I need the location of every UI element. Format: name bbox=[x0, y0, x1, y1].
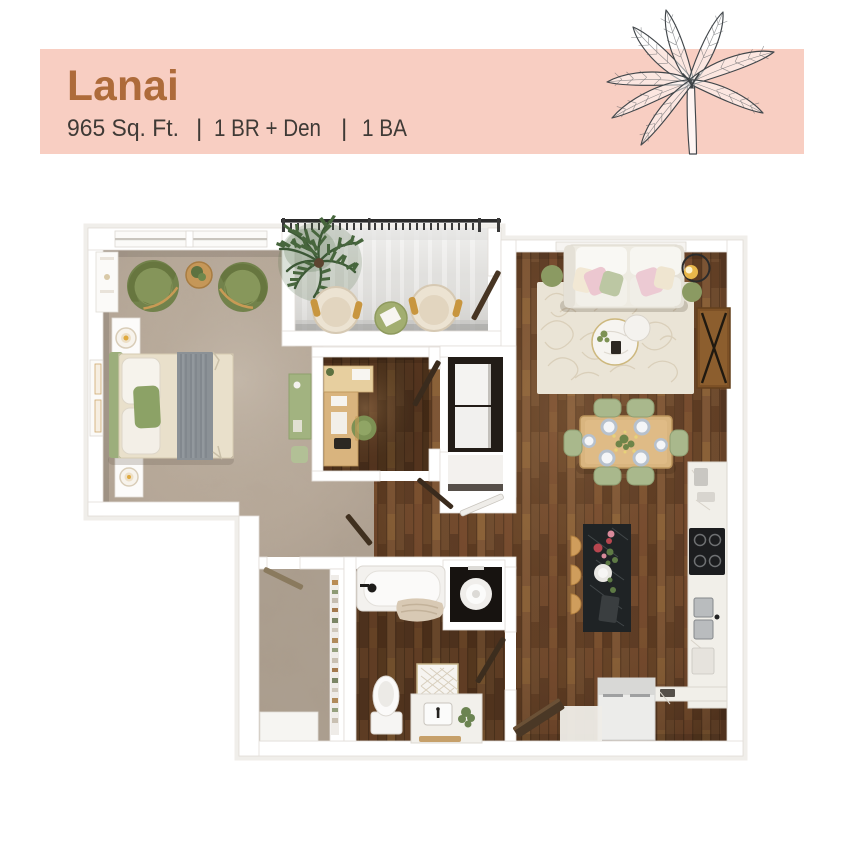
svg-text:Lanai: Lanai bbox=[67, 63, 179, 110]
